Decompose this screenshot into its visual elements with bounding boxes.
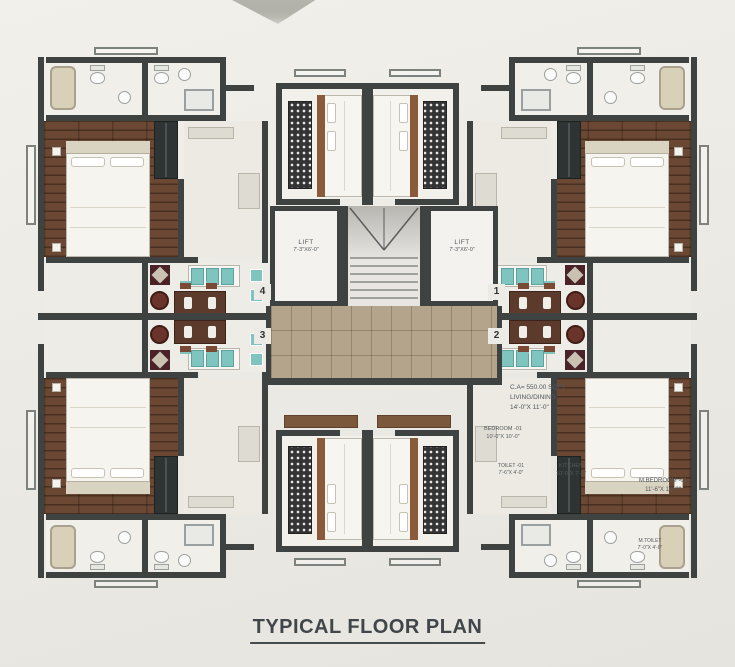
bedroom-bed-headboard: [317, 95, 325, 197]
sofa-cushion: [221, 350, 234, 367]
dining-table: [509, 320, 561, 344]
bedroom-label: BEDROOM -01 10'-0"X 10'-0": [468, 426, 538, 442]
wall: [395, 199, 459, 205]
bedroom-dims: 10'-0"X 10'-0": [468, 434, 538, 442]
wall: [587, 63, 593, 115]
dining-chair: [544, 281, 555, 289]
sink: [178, 68, 191, 81]
lift-left-label: LIFT 7'-3"X6'-0": [275, 238, 337, 255]
toilet: [566, 65, 581, 71]
balcony-ledge: [94, 580, 158, 588]
bed-fold-line: [70, 227, 146, 228]
wall: [276, 546, 368, 552]
wall: [691, 57, 697, 291]
bedside-table: [52, 383, 61, 392]
bathtub: [50, 66, 76, 110]
dining-chair: [180, 346, 191, 354]
bedroom-rug: [423, 101, 447, 189]
wall: [587, 263, 593, 317]
wall: [587, 520, 593, 572]
balcony-ledge: [294, 69, 346, 77]
wall: [467, 372, 473, 514]
dining-chair: [544, 346, 555, 354]
wall: [178, 372, 184, 456]
bedroom-rug: [288, 446, 312, 534]
bedroom-rug: [423, 446, 447, 534]
toilet-label: TOILET -01 7'-6"X 4'-0": [487, 463, 535, 478]
wall: [142, 63, 148, 115]
sink: [118, 531, 131, 544]
lift-left-shaft: [270, 206, 342, 306]
bed-fold-line: [589, 207, 665, 208]
master-bed-headboard: [66, 141, 150, 154]
balcony-ledge: [577, 580, 641, 588]
bedroom-bed-headboard: [410, 438, 418, 540]
pillow: [399, 512, 408, 532]
sideboard: [284, 415, 358, 428]
bed-fold-line: [390, 444, 391, 534]
lift-right-dims: 7'-3"X6'-0": [431, 247, 493, 255]
photo-shadow: [213, 0, 331, 24]
plate: [519, 297, 527, 309]
toilet: [154, 551, 169, 563]
wall: [142, 318, 148, 372]
unit-number-3: 3: [254, 328, 271, 344]
sofa-cushion: [531, 350, 544, 367]
dining-table: [174, 320, 226, 344]
toilet: [566, 72, 581, 84]
pillow: [327, 484, 336, 504]
wall: [395, 430, 459, 436]
dining-chair: [206, 281, 217, 289]
sofa-cushion: [191, 350, 204, 367]
wall: [276, 430, 340, 436]
toilet: [154, 65, 169, 71]
wall: [46, 257, 198, 263]
wall: [367, 546, 459, 552]
plate: [208, 326, 216, 338]
sofa-cushion: [501, 350, 514, 367]
pillow: [327, 512, 336, 532]
carpet-area-line2: LIVING/DINING: [510, 393, 606, 403]
balcony-ledge: [26, 145, 36, 225]
wall: [46, 572, 226, 578]
dining-chair: [518, 281, 529, 289]
master-toilet-name: M.TOILET: [626, 538, 674, 545]
pillow: [591, 157, 625, 167]
balcony-ledge: [577, 47, 641, 55]
bed-fold-line: [344, 444, 345, 534]
sink: [604, 531, 617, 544]
sofa-cushion: [221, 268, 234, 285]
wall: [453, 83, 459, 205]
kitchen-counter: [475, 173, 497, 209]
pillow: [399, 484, 408, 504]
wall: [509, 57, 689, 63]
lift-left-name: LIFT: [275, 238, 337, 247]
wall: [142, 520, 148, 572]
teal-stool: [250, 269, 263, 282]
carpet-area-line3: 14'-0"X 11'-0": [510, 403, 606, 413]
pillow: [327, 103, 336, 123]
kitchen-counter: [501, 496, 547, 508]
toilet: [630, 72, 645, 84]
wall: [38, 344, 44, 578]
bedside-table: [52, 243, 61, 252]
wall: [38, 57, 44, 291]
wall: [509, 514, 689, 520]
wardrobe-door-line: [568, 123, 570, 177]
wall: [224, 85, 254, 91]
balcony-ledge: [94, 47, 158, 55]
plate: [184, 297, 192, 309]
wall: [276, 430, 282, 552]
lobby-tiled-floor: [266, 306, 502, 380]
bedside-table: [52, 147, 61, 156]
sink: [544, 554, 557, 567]
toilet: [630, 65, 645, 71]
dining-chair: [206, 346, 217, 354]
kitchen-counter: [238, 426, 260, 462]
bed-fold-line: [70, 207, 146, 208]
unit-number-2: 2: [488, 328, 505, 344]
wall: [262, 372, 268, 514]
kitchen-name: KITCHEN: [544, 463, 598, 471]
floor-plan-canvas: 4 3 1 2 LIFT 7'-3"X6'-0" LIFT 7'-3"X6'-0…: [0, 0, 735, 667]
bedroom-rug: [288, 101, 312, 189]
master-bedroom-label: M.BEDROOM -01 11'-6"X 10'-0": [618, 477, 708, 494]
round-table: [150, 325, 169, 344]
pillow: [327, 131, 336, 151]
master-bed-headboard: [585, 141, 669, 154]
kitchen-dims: 10'-0"X 7'-6": [544, 471, 598, 479]
round-table: [566, 291, 585, 310]
master-toilet-label: M.TOILET 7'-0"X 4'-0": [626, 538, 674, 553]
master-bed-headboard: [66, 481, 150, 494]
kitchen-counter: [501, 127, 547, 139]
bedside-table: [674, 243, 683, 252]
wall: [142, 263, 148, 317]
toilet-name: TOILET -01: [487, 463, 535, 470]
sideboard: [377, 415, 451, 428]
balcony-ledge: [699, 145, 709, 225]
shower: [184, 524, 214, 546]
carpet-area-note: C.A= 550.00 SQFT LIVING/DINING 14'-0"X 1…: [510, 383, 606, 413]
sofa-cushion: [531, 268, 544, 285]
sofa-cushion: [191, 268, 204, 285]
balcony-ledge: [294, 558, 346, 566]
sink: [544, 68, 557, 81]
plan-title: TYPICAL FLOOR PLAN: [250, 616, 486, 644]
bathtub: [659, 66, 685, 110]
toilet: [90, 564, 105, 570]
wall: [367, 83, 459, 89]
sink: [604, 91, 617, 104]
bedside-table: [674, 147, 683, 156]
wall: [509, 115, 689, 121]
bedroom-bed-headboard: [410, 95, 418, 197]
wall: [509, 572, 689, 578]
plate: [543, 297, 551, 309]
staircase: [342, 206, 426, 306]
master-bedroom-dims: 11'-6"X 10'-0": [618, 486, 708, 495]
wall: [481, 544, 511, 550]
toilet: [566, 551, 581, 563]
kitchen-counter: [188, 496, 234, 508]
kitchen-counter: [188, 127, 234, 139]
dining-chair: [518, 346, 529, 354]
shower: [184, 89, 214, 111]
bed-fold-line: [344, 101, 345, 191]
wall: [266, 378, 502, 385]
toilet: [630, 551, 645, 563]
pillow: [71, 468, 105, 478]
teal-stool: [250, 353, 263, 366]
dining-table: [174, 291, 226, 315]
pillow: [110, 468, 144, 478]
shower: [521, 89, 551, 111]
pillow: [630, 157, 664, 167]
plate: [543, 326, 551, 338]
lift-left-dims: 7'-3"X6'-0": [275, 247, 337, 255]
wall: [453, 430, 459, 552]
balcony-ledge: [389, 69, 441, 77]
sofa-cushion: [501, 268, 514, 285]
wardrobe-door-line: [165, 123, 167, 177]
bedside-table: [674, 383, 683, 392]
balcony-ledge: [389, 558, 441, 566]
dining-chair: [180, 281, 191, 289]
lift-right-label: LIFT 7'-3"X6'-0": [431, 238, 493, 255]
wall: [178, 179, 184, 263]
plate: [208, 297, 216, 309]
bed-fold-line: [390, 101, 391, 191]
toilet: [90, 72, 105, 84]
sink: [178, 554, 191, 567]
unit-number-4: 4: [254, 284, 271, 300]
plate: [184, 326, 192, 338]
plate: [519, 326, 527, 338]
toilet: [90, 551, 105, 563]
pillow: [399, 131, 408, 151]
staircase-drawing: [348, 206, 420, 306]
wall: [262, 121, 268, 263]
bedroom-bed-headboard: [317, 438, 325, 540]
lift-right-name: LIFT: [431, 238, 493, 247]
kitchen-label: KITCHEN 10'-0"X 7'-6": [544, 463, 598, 479]
master-bedroom-name: M.BEDROOM -01: [618, 477, 708, 486]
wall: [691, 344, 697, 578]
wall: [537, 257, 689, 263]
master-toilet-dims: 7'-0"X 4'-0": [626, 545, 674, 552]
wall: [481, 85, 511, 91]
wall: [46, 115, 226, 121]
pillow: [110, 157, 144, 167]
balcony-ledge: [26, 410, 36, 490]
wall: [46, 57, 226, 63]
wall: [551, 179, 557, 263]
toilet-dims: 7'-6"X 4'-0": [487, 470, 535, 477]
wall: [224, 544, 254, 550]
pillow: [71, 157, 105, 167]
round-table: [566, 325, 585, 344]
toilet: [630, 564, 645, 570]
wall: [276, 83, 368, 89]
bed-fold-line: [589, 227, 665, 228]
toilet: [154, 564, 169, 570]
bed-fold-line: [70, 427, 146, 428]
toilet: [154, 72, 169, 84]
wall: [276, 199, 340, 205]
wardrobe-door-line: [165, 458, 167, 512]
bed-fold-line: [589, 427, 665, 428]
kitchen-counter: [238, 173, 260, 209]
wall: [46, 514, 226, 520]
wall: [587, 318, 593, 372]
toilet: [90, 65, 105, 71]
wall: [38, 313, 268, 320]
pillow: [399, 103, 408, 123]
bedside-table: [52, 479, 61, 488]
unit-number-1: 1: [488, 284, 505, 300]
bed-fold-line: [70, 407, 146, 408]
sink: [118, 91, 131, 104]
wall: [276, 83, 282, 205]
round-table: [150, 291, 169, 310]
toilet: [566, 564, 581, 570]
dining-table: [509, 291, 561, 315]
bathtub: [50, 525, 76, 569]
bedroom-name: BEDROOM -01: [468, 426, 538, 434]
carpet-area-line1: C.A= 550.00 SQFT: [510, 383, 606, 393]
shower: [521, 524, 551, 546]
